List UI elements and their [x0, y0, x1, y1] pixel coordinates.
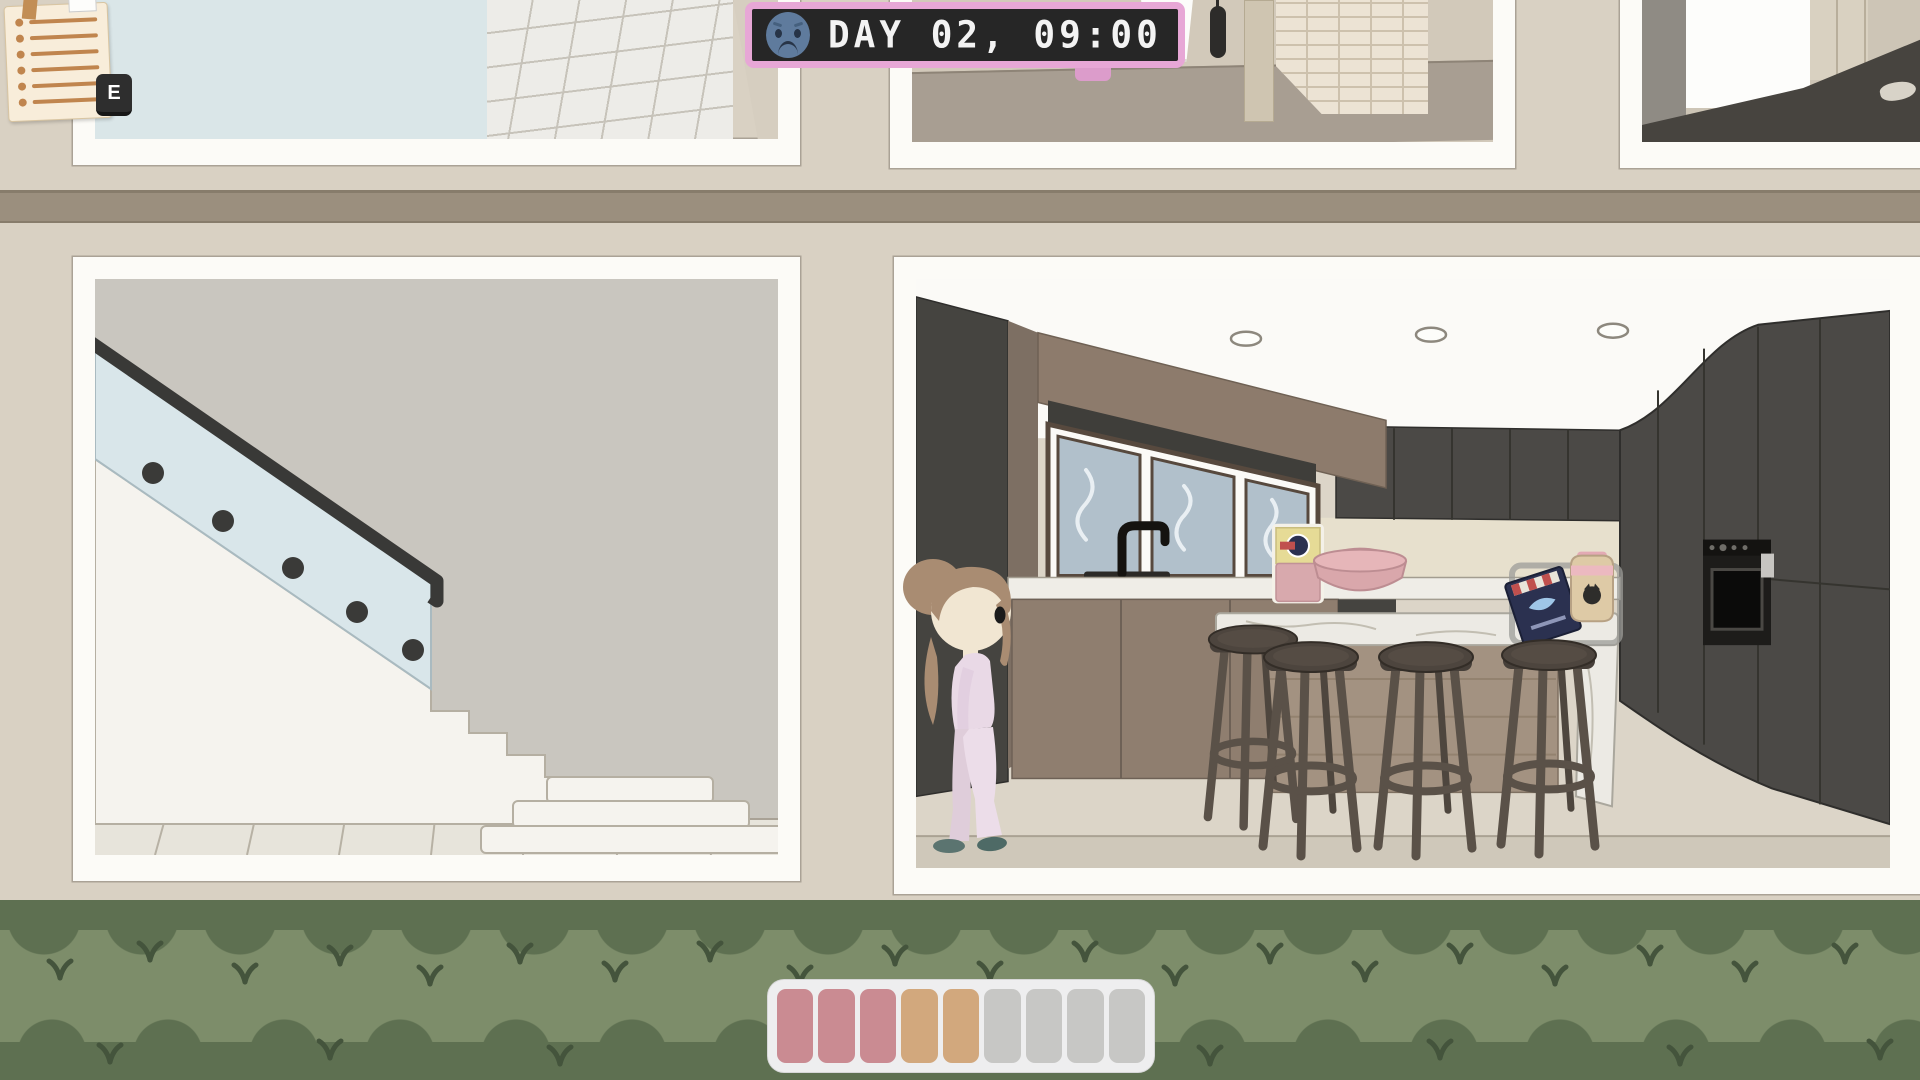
milk-jar[interactable]	[1571, 552, 1613, 622]
e-key-badge[interactable]: E	[96, 74, 132, 116]
note-line	[16, 47, 98, 59]
clock-stand	[1075, 66, 1111, 81]
note-line	[18, 79, 100, 91]
bathroom-tile-floor	[487, 0, 733, 139]
status-segment	[1109, 989, 1145, 1063]
clock-display: DAY 02, 09:00	[828, 13, 1162, 56]
room-upper-bedroom	[1620, 0, 1920, 168]
status-segment	[1067, 989, 1103, 1063]
tape-icon	[22, 0, 38, 20]
room-staircase	[73, 257, 800, 881]
hanging-tool	[1210, 6, 1226, 58]
room-upper-bathroom	[73, 0, 800, 165]
kitchen-scene	[916, 279, 1890, 868]
status-segment	[860, 989, 896, 1063]
note-line	[16, 31, 98, 43]
status-segment	[984, 989, 1020, 1063]
staircase-scene	[95, 279, 778, 855]
floor-slab-band	[0, 190, 1920, 223]
wall-pillar	[1244, 0, 1274, 122]
paper-tab	[68, 0, 97, 12]
status-bar	[768, 980, 1154, 1072]
status-segment	[901, 989, 937, 1063]
status-segment	[818, 989, 854, 1063]
status-segment	[1026, 989, 1062, 1063]
room-kitchen	[894, 257, 1920, 894]
note-line	[19, 95, 101, 107]
status-segment	[777, 989, 813, 1063]
player-character	[903, 545, 1033, 859]
game-stage: DAY 02, 09:00 E	[0, 0, 1920, 1080]
sad-face-icon	[766, 12, 810, 58]
bedroom-gray-wall	[1642, 0, 1686, 130]
oven	[1703, 540, 1774, 645]
game-clock: DAY 02, 09:00	[745, 2, 1185, 68]
character-eye	[995, 607, 1006, 624]
status-segment	[943, 989, 979, 1063]
shower-glass-wall	[95, 0, 489, 139]
note-line	[17, 63, 99, 75]
